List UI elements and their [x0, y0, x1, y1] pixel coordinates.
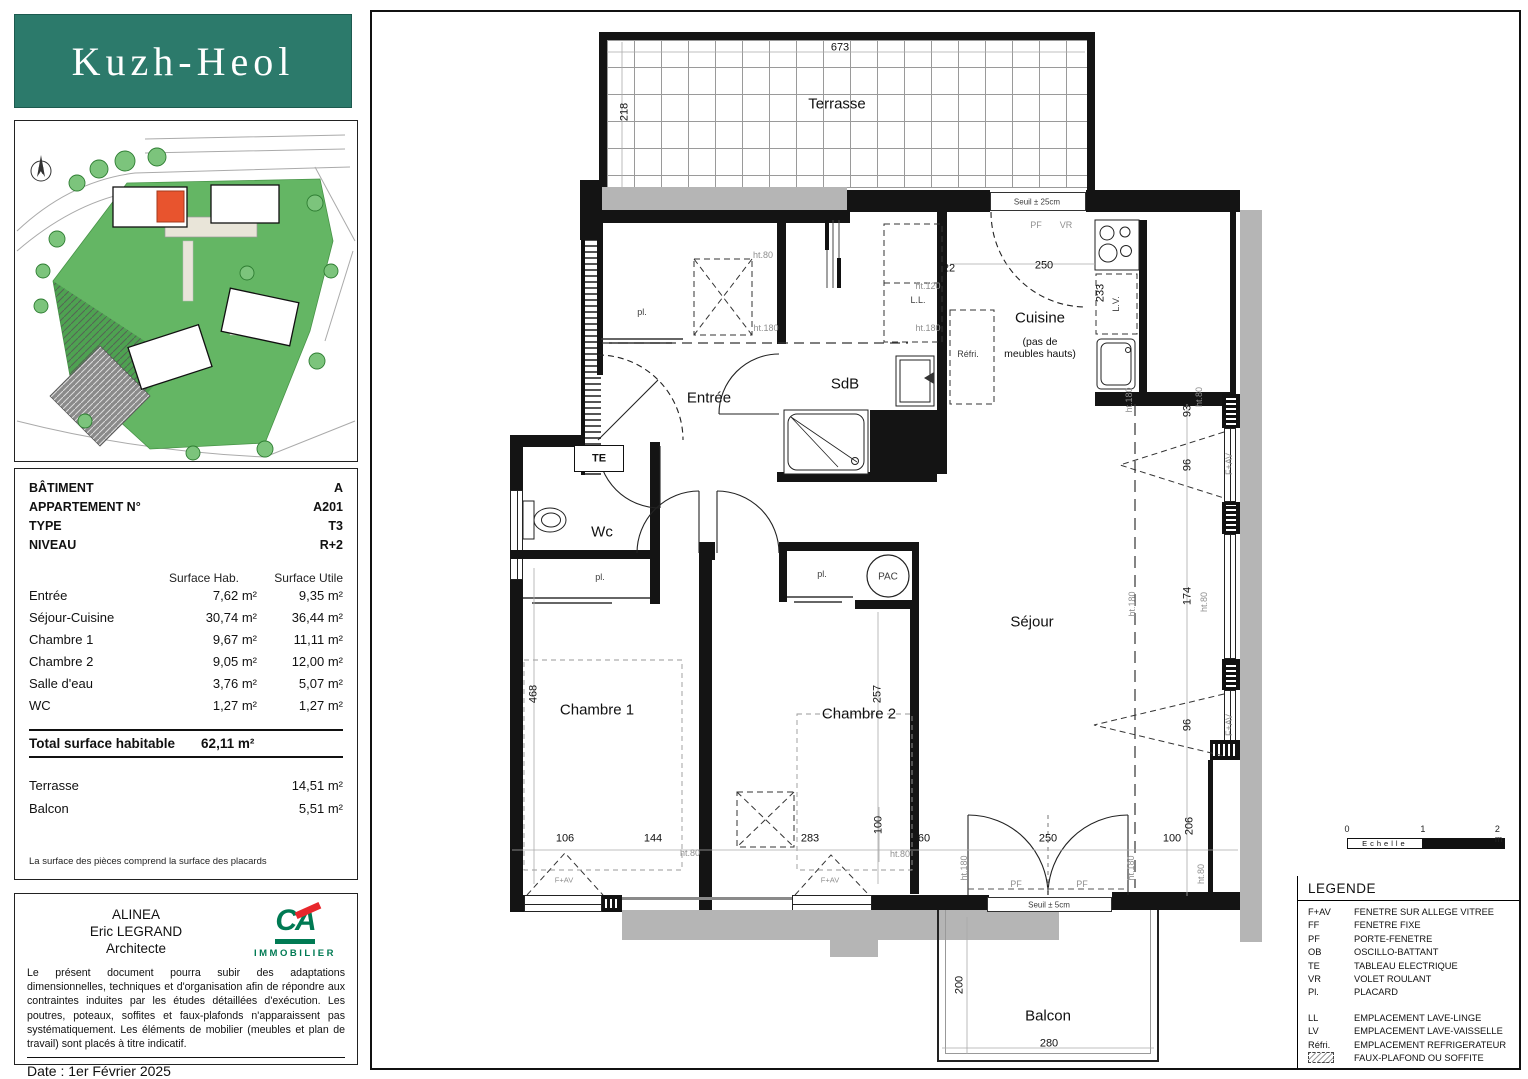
surface-hab: 9,67 m² [171, 629, 257, 651]
legend-abbr: F+AV [1308, 906, 1354, 919]
floor-plan: TerrasseEntréeSdBCuisine(pas de meubles … [370, 10, 1521, 1070]
legend-row: LL EMPLACEMENT LAVE-LINGE [1308, 1012, 1521, 1025]
legend-row: FAUX-PLAFOND OU SOFFITE [1308, 1052, 1521, 1067]
total-surface-row: Total surface habitable 62,11 m² [29, 729, 343, 758]
surface-utile-col: Surface Utile [257, 571, 343, 585]
tag-ht180-balc1: ht.180 [959, 855, 969, 880]
tag-pl-ch2: pl. [817, 569, 827, 579]
surface-footnote: La surface des pièces comprend la surfac… [29, 856, 267, 867]
info-row: BÂTIMENT A [29, 479, 343, 498]
ca-logo-underline [275, 939, 314, 944]
ca-immobilier-logo: CA IMMOBILIER [245, 902, 345, 959]
room-wc: Wc [591, 523, 613, 540]
surface-utile: 1,27 m² [257, 695, 343, 717]
legend-label: EMPLACEMENT LAVE-LINGE [1354, 1012, 1521, 1025]
extra-name: Terrasse [29, 774, 79, 797]
surface-row: WC 1,27 m² 1,27 m² [29, 695, 343, 717]
legend-label: FENETRE FIXE [1354, 919, 1521, 932]
surface-hab: 9,05 m² [171, 651, 257, 673]
legend-row: OB OSCILLO-BATTANT [1308, 946, 1521, 959]
tag-fav-ch2: F+AV [821, 877, 839, 886]
surface-hab: 1,27 m² [171, 695, 257, 717]
info-label: TYPE [29, 517, 62, 536]
info-value: T3 [328, 517, 343, 536]
legend-row: Réfri. EMPLACEMENT REFRIGERATEUR [1308, 1039, 1521, 1052]
info-label: APPARTEMENT N° [29, 498, 141, 517]
tag-ht120-sdb: ht.120 [915, 281, 940, 291]
architect-names: ALINEAEric LEGRANDArchitecte [27, 902, 245, 957]
tag-pl-ch1: pl. [595, 572, 605, 582]
tag-ht180-sdb: ht.180 [915, 323, 940, 333]
tag-ht80-ch2: ht.80 [890, 849, 910, 859]
scale-tick: 0 [1344, 824, 1349, 834]
faux-plafond-hatch-icon [1308, 1052, 1334, 1063]
room-cuisine: Cuisine [1015, 309, 1065, 326]
tag-pf-balc1: PF [1010, 879, 1022, 889]
legend-label: VOLET ROULANT [1354, 973, 1521, 986]
tag-fav-ch1: F+AV [555, 877, 573, 886]
dim-283: 283 [801, 833, 819, 846]
legend-label: PLACARD [1354, 986, 1521, 999]
surface-row: Chambre 1 9,67 m² 11,11 m² [29, 629, 343, 651]
tag-ht80-balc: ht.80 [1196, 864, 1206, 884]
tag-ht180-cuisine: ht.180 [1124, 387, 1134, 412]
extra-value: 5,51 m² [299, 797, 343, 820]
legend-label: TABLEAU ELECTRIQUE [1354, 960, 1521, 973]
dim-257: 257 [872, 685, 885, 703]
surface-row: Entrée 7,62 m² 9,35 m² [29, 585, 343, 607]
room-name: Séjour-Cuisine [29, 607, 171, 629]
legend-abbr: VR [1308, 973, 1354, 986]
surface-row: Séjour-Cuisine 30,74 m² 36,44 m² [29, 607, 343, 629]
legend-row: Pl. PLACARD [1308, 986, 1521, 999]
dim-100-mid: 100 [873, 816, 886, 834]
info-label: NIVEAU [29, 536, 76, 555]
ca-logo-subtitle: IMMOBILIER [245, 948, 345, 959]
room-name: Chambre 1 [29, 629, 171, 651]
legend-row: FF FENETRE FIXE [1308, 919, 1521, 932]
legend-abbr [1308, 1052, 1354, 1067]
legend-abbr: LL [1308, 1012, 1354, 1025]
legend-label: EMPLACEMENT LAVE-VAISSELLE [1354, 1025, 1521, 1038]
info-value: A [334, 479, 343, 498]
room-balcon: Balcon [1025, 1007, 1071, 1024]
scale-ticks: 012 m [1347, 824, 1505, 836]
legend-row: TE TABLEAU ELECTRIQUE [1308, 960, 1521, 973]
dim-280: 280 [1040, 1038, 1058, 1051]
tag-ht180-balc2: ht.180 [1126, 855, 1136, 880]
dim-106: 106 [556, 833, 574, 846]
tag-vr-top: VR [1060, 220, 1073, 230]
room-entree: Entrée [687, 389, 731, 406]
architect-line: Eric LEGRAND [27, 923, 245, 940]
dim-673: 673 [831, 42, 849, 55]
tag-pf-top: PF [1030, 220, 1042, 230]
room-name: Salle d'eau [29, 673, 171, 695]
scale-tick: 1 [1420, 824, 1425, 834]
surface-utile: 9,35 m² [257, 585, 343, 607]
legend-abbr: OB [1308, 946, 1354, 959]
legend-label: FENETRE SUR ALLEGE VITREE [1354, 906, 1521, 919]
dim-144: 144 [644, 833, 662, 846]
extra-value: 14,51 m² [292, 774, 343, 797]
legend-abbr: Pl. [1308, 986, 1354, 999]
surface-hab-col: Surface Hab. [153, 571, 239, 585]
tag-ll: L.L. [910, 295, 925, 305]
dim-218: 218 [619, 103, 632, 121]
legend-row: F+AV FENETRE SUR ALLEGE VITREE [1308, 906, 1521, 919]
scale-tick: 2 m [1495, 824, 1503, 844]
tag-refri: Réfri. [957, 349, 979, 359]
building-info-rows: BÂTIMENT A APPARTEMENT N° A201 TYPE T3 N… [29, 479, 343, 555]
floorplan-sheet: Kuzh-Heol [0, 0, 1528, 1079]
surface-table: Entrée 7,62 m² 9,35 m² Séjour-Cuisine 30… [29, 585, 343, 717]
tag-ht80-cuisine: ht.80 [1194, 387, 1204, 407]
dim-200: 200 [954, 976, 967, 994]
date-label: Date : 1er Février 2025 [27, 1057, 345, 1079]
info-value: A201 [313, 498, 343, 517]
info-value: R+2 [320, 536, 343, 555]
dim-174: 174 [1182, 587, 1195, 605]
dim-250-balcon: 250 [1039, 833, 1057, 846]
info-row: TYPE T3 [29, 517, 343, 536]
room-sdb: SdB [831, 375, 859, 392]
tag-ht180-sejour: ht.180 [1127, 591, 1137, 616]
site-plan-drawing [15, 121, 357, 461]
info-row: NIVEAU R+2 [29, 536, 343, 555]
compass-north-label: N [38, 166, 45, 176]
legend-row: PF PORTE-FENETRE [1308, 933, 1521, 946]
room-name: WC [29, 695, 171, 717]
surface-row: Salle d'eau 3,76 m² 5,07 m² [29, 673, 343, 695]
surface-utile: 12,00 m² [257, 651, 343, 673]
dim-100-right: 100 [1163, 833, 1181, 846]
extra-row: Balcon 5,51 m² [29, 797, 343, 820]
info-row: APPARTEMENT N° A201 [29, 498, 343, 517]
surface-utile: 36,44 m² [257, 607, 343, 629]
tag-te: TE [592, 453, 606, 466]
dim-96b: 96 [1182, 719, 1195, 731]
extra-name: Balcon [29, 797, 69, 820]
architect-line: Architecte [27, 940, 245, 957]
surface-row: Chambre 2 9,05 m² 12,00 m² [29, 651, 343, 673]
legend-label: FAUX-PLAFOND OU SOFFITE [1354, 1052, 1521, 1067]
legend-divider [1298, 900, 1521, 901]
legend-row: LV EMPLACEMENT LAVE-VAISSELLE [1308, 1025, 1521, 1038]
dim-22: 22 [943, 263, 955, 276]
tag-pl-entree: pl. [637, 307, 647, 317]
architect-panel: ALINEAEric LEGRANDArchitecte CA IMMOBILI… [14, 893, 358, 1065]
room-cuisine-note: (pas de meubles hauts) [1004, 336, 1076, 360]
tag-ht80-entree: ht.80 [753, 250, 773, 260]
legend-abbr: FF [1308, 919, 1354, 932]
disclaimer-text: Le présent document pourra subir des ada… [27, 966, 345, 1051]
total-value: 62,11 m² [201, 736, 254, 751]
legend-abbr: PF [1308, 933, 1354, 946]
surface-utile: 11,11 m² [257, 629, 343, 651]
tag-pf-balc2: PF [1076, 879, 1088, 889]
total-label: Total surface habitable [29, 736, 175, 751]
logo-banner: Kuzh-Heol [14, 14, 352, 108]
surface-hab: 30,74 m² [171, 607, 257, 629]
legend-panel: LEGENDE F+AV FENETRE SUR ALLEGE VITREE F… [1297, 876, 1521, 1070]
scale-bar: 012 m Echelle [1347, 824, 1505, 849]
surface-hab: 3,76 m² [171, 673, 257, 695]
dim-250-cuisine: 250 [1035, 260, 1053, 273]
room-chambre-2: Chambre 2 [822, 705, 896, 722]
dim-233: 233 [1095, 284, 1108, 302]
dim-60: 60 [918, 833, 930, 846]
surface-hab: 7,62 m² [171, 585, 257, 607]
tag-seuil25: Seuil ± 25cm [1014, 197, 1060, 206]
legend-label: OSCILLO-BATTANT [1354, 946, 1521, 959]
surface-table-header: Surface Hab. Surface Utile [29, 571, 343, 585]
dim-96a: 96 [1182, 459, 1195, 471]
tag-lv: L.V. [1111, 296, 1121, 311]
legend-title: LEGENDE [1308, 881, 1521, 896]
tag-seuil5: Seuil ± 5cm [1028, 900, 1070, 909]
extra-row: Terrasse 14,51 m² [29, 774, 343, 797]
dim-93: 93 [1182, 405, 1195, 417]
info-label: BÂTIMENT [29, 479, 94, 498]
room-chambre-1: Chambre 1 [560, 701, 634, 718]
tag-ht80-sejour: ht.80 [1199, 592, 1209, 612]
outdoor-surfaces: Terrasse 14,51 m² Balcon 5,51 m² [29, 774, 343, 820]
dim-468: 468 [528, 685, 541, 703]
tag-ht180-entree: ht.180 [753, 323, 778, 333]
logo-text: Kuzh-Heol [72, 38, 295, 85]
legend-label: EMPLACEMENT REFRIGERATEUR [1354, 1039, 1521, 1052]
tag-pac: PAC [878, 571, 898, 583]
room-name: Entrée [29, 585, 171, 607]
site-plan: N [14, 120, 358, 462]
legend-abbr: TE [1308, 960, 1354, 973]
apartment-info-panel: BÂTIMENT A APPARTEMENT N° A201 TYPE T3 N… [14, 468, 358, 880]
tag-fav-win1: F+AV [1224, 453, 1234, 475]
tag-fav-win3: F+AV [1224, 714, 1234, 736]
legend-abbr: Réfri. [1308, 1039, 1354, 1052]
legend-items: F+AV FENETRE SUR ALLEGE VITREE FF FENETR… [1308, 906, 1521, 1067]
tag-ht80-ch1: ht.80 [680, 848, 700, 858]
room-sejour: Séjour [1010, 613, 1053, 630]
dim-206: 206 [1184, 817, 1197, 835]
legend-abbr: LV [1308, 1025, 1354, 1038]
room-name: Chambre 2 [29, 651, 171, 673]
surface-utile: 5,07 m² [257, 673, 343, 695]
room-terrasse: Terrasse [808, 95, 866, 112]
legend-label: PORTE-FENETRE [1354, 933, 1521, 946]
scale-bar-black [1423, 838, 1505, 849]
highlighted-unit [157, 191, 184, 222]
scale-bar-label: Echelle [1347, 838, 1423, 849]
legend-row: VR VOLET ROULANT [1308, 973, 1521, 986]
architect-line: ALINEA [27, 906, 245, 923]
